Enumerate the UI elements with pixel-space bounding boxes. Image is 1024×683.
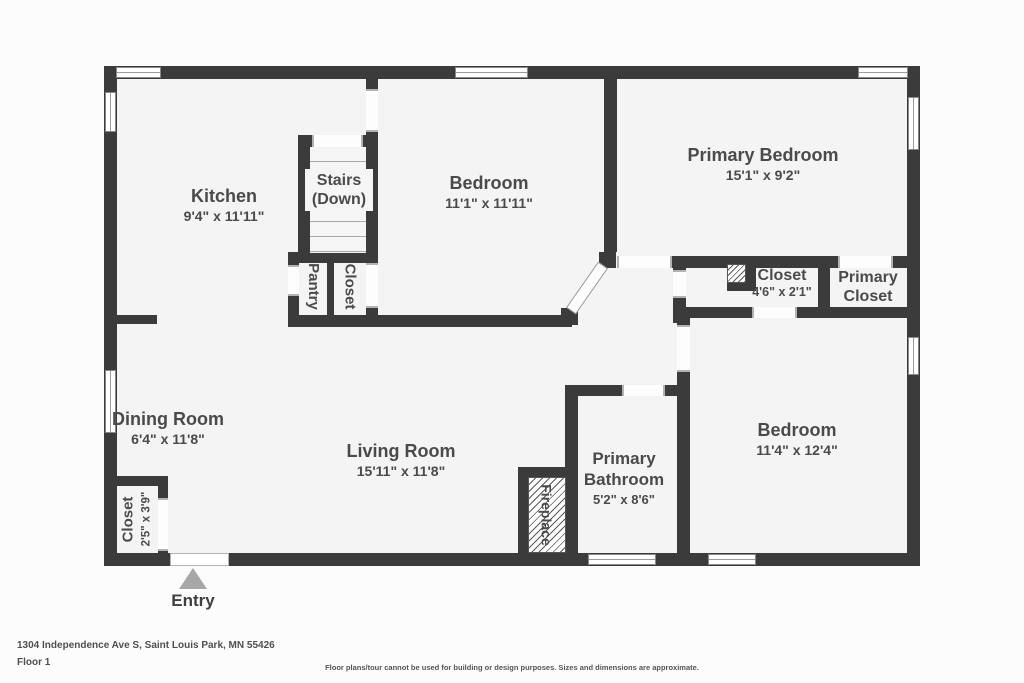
room-name-line2: Bathroom	[574, 469, 674, 490]
window-marker	[455, 67, 528, 78]
room-name-line1: Primary	[826, 268, 910, 287]
wall	[665, 385, 690, 396]
room-label-stairs-closet: Closet	[333, 258, 366, 315]
door-opening	[752, 307, 797, 318]
entry-arrow-icon	[179, 568, 207, 589]
wall	[366, 66, 378, 89]
window-marker	[908, 337, 919, 375]
room-dims: 5'2" x 8'6"	[574, 490, 674, 509]
stairs-line1: Stairs	[305, 171, 373, 190]
room-label-hall-closet: Closet 4'6" x 2'1"	[742, 267, 822, 300]
wall	[604, 66, 617, 252]
window-marker	[908, 97, 919, 150]
wall	[104, 315, 157, 324]
stairs-line2: (Down)	[305, 190, 373, 209]
wall	[158, 551, 168, 566]
wall	[797, 307, 920, 318]
room-name: Dining Room	[95, 409, 241, 430]
room-name: Closet	[742, 267, 822, 284]
room-name: Primary Bedroom	[662, 145, 864, 166]
room-name: Living Room	[319, 441, 483, 462]
room-label-living-room: Living Room 15'11" x 11'8"	[319, 441, 483, 481]
wall	[677, 318, 690, 325]
address-text: 1304 Independence Ave S, Saint Louis Par…	[17, 640, 275, 651]
room-label-stairs: Stairs (Down)	[305, 169, 373, 211]
room-label-bedroom-top: Bedroom 11'1" x 11'11"	[409, 173, 569, 213]
door-opening	[158, 498, 168, 551]
room-label-entry-closet-dims: 2'5" x 3'9"	[137, 484, 156, 554]
window-marker	[588, 554, 656, 565]
room-dims: 9'4" x 11'11"	[143, 207, 305, 226]
disclaimer-text: Floor plans/tour cannot be used for buil…	[0, 663, 1024, 672]
room-name: Bedroom	[716, 420, 878, 441]
window-marker	[116, 67, 161, 78]
room-name: Pantry	[305, 263, 322, 310]
room-dims: 11'4" x 12'4"	[716, 441, 878, 460]
room-name: Bedroom	[409, 173, 569, 194]
wall	[158, 476, 168, 498]
room-dims: 6'4" x 11'8"	[95, 430, 241, 449]
room-dims: 15'11" x 11'8"	[319, 462, 483, 481]
room-name-line2: Closet	[826, 287, 910, 306]
door-opening	[838, 256, 893, 268]
room-name: Kitchen	[143, 186, 305, 207]
room-dims: 2'5" x 3'9"	[141, 492, 153, 547]
wall	[893, 256, 920, 268]
room-dims: 11'1" x 11'11"	[409, 194, 569, 213]
entry-door-opening	[170, 553, 229, 566]
room-label-dining-room: Dining Room 6'4" x 11'8"	[95, 409, 241, 449]
door-opening	[677, 325, 690, 372]
room-name: Closet	[341, 264, 358, 310]
door-opening	[617, 256, 672, 268]
room-name: Closet	[119, 496, 136, 542]
window-marker	[708, 554, 756, 565]
door-opening	[288, 265, 299, 296]
door-opening	[366, 263, 378, 308]
room-name: Fireplace	[539, 484, 555, 545]
room-name-line1: Primary	[574, 449, 674, 469]
door-opening	[366, 89, 378, 132]
wall	[673, 256, 686, 270]
room-label-pantry: Pantry	[299, 258, 327, 315]
wall	[682, 307, 752, 318]
wall	[677, 396, 690, 566]
room-label-fireplace: Fireplace	[528, 477, 566, 553]
entry-label: Entry	[159, 591, 227, 611]
room-dims: 4'6" x 2'1"	[742, 284, 822, 300]
wall	[288, 252, 299, 265]
wall	[298, 135, 312, 147]
room-label-primary-closet: Primary Closet	[826, 268, 910, 306]
door-opening	[673, 270, 686, 298]
room-label-primary-bedroom: Primary Bedroom 15'1" x 9'2"	[662, 145, 864, 185]
door-opening	[622, 385, 665, 396]
door-opening	[312, 135, 363, 147]
window-marker	[858, 67, 908, 78]
wall	[288, 315, 572, 327]
room-dims: 15'1" x 9'2"	[662, 166, 864, 185]
wall	[518, 467, 528, 566]
room-label-bedroom-bottom: Bedroom 11'4" x 12'4"	[716, 420, 878, 460]
window-marker	[105, 92, 116, 132]
room-label-primary-bathroom: Primary Bathroom 5'2" x 8'6"	[574, 449, 674, 509]
room-label-kitchen: Kitchen 9'4" x 11'11"	[143, 186, 305, 226]
